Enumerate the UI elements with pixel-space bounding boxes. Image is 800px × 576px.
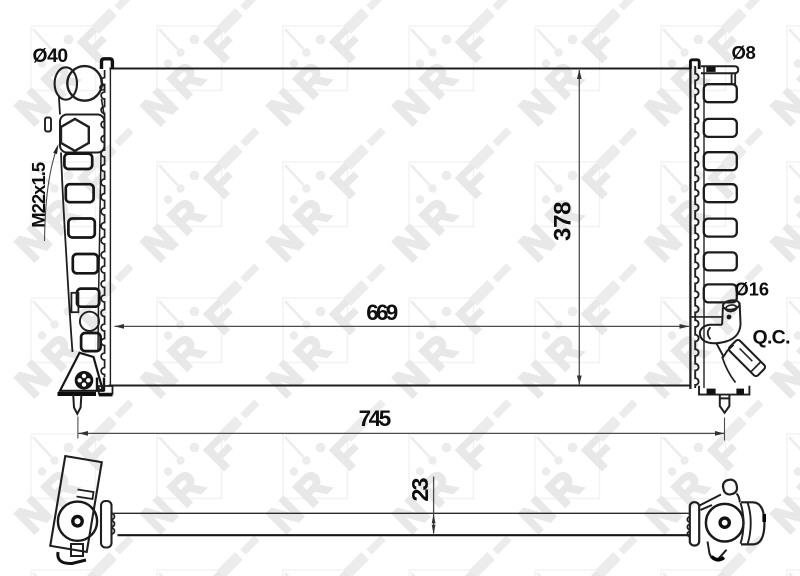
- svg-text:Ø16: Ø16: [735, 278, 770, 299]
- svg-text:745: 745: [359, 406, 391, 431]
- svg-text:Ø8: Ø8: [732, 42, 756, 63]
- svg-text:Ø40: Ø40: [33, 46, 68, 67]
- svg-text:378: 378: [550, 202, 577, 241]
- svg-text:23: 23: [407, 478, 433, 502]
- svg-text:669: 669: [366, 300, 398, 325]
- svg-text:Q.C.: Q.C.: [753, 326, 791, 348]
